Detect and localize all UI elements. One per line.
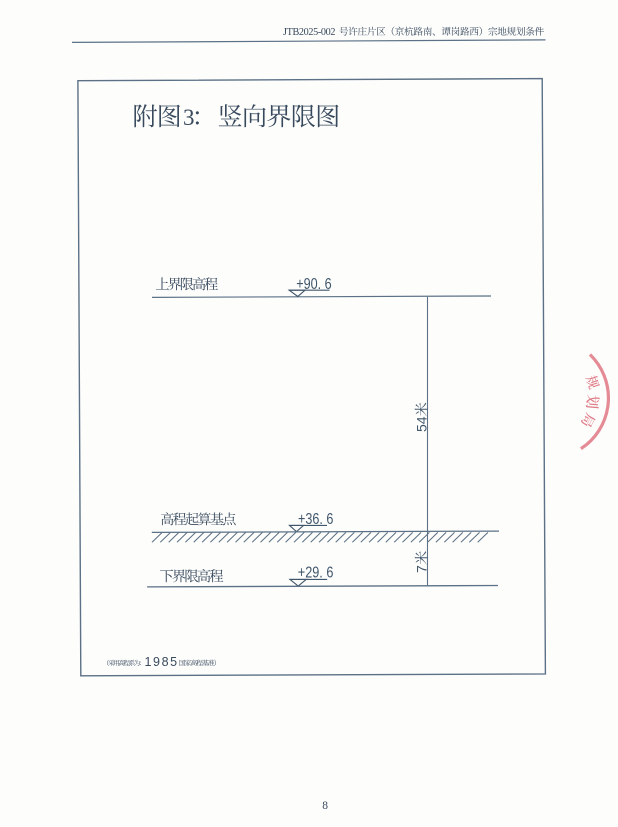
svg-text:54: 54: [414, 416, 430, 432]
svg-text:3: 3: [183, 105, 195, 130]
svg-text:8: 8: [322, 800, 328, 812]
svg-text:7: 7: [414, 565, 430, 573]
svg-text:JTB2025-002: JTB2025-002: [283, 27, 336, 38]
svg-text:1985: 1985: [145, 655, 179, 669]
